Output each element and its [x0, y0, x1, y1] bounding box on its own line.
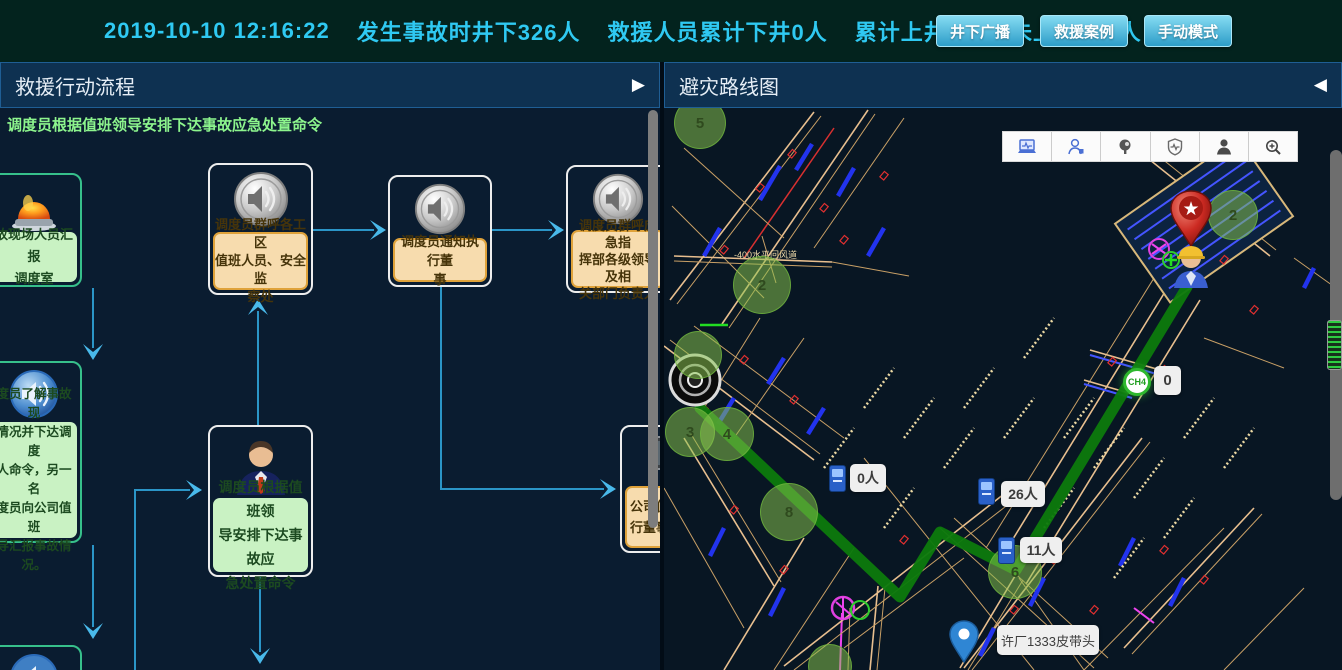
right-panel-header: 避灾路线图 ◀ — [664, 62, 1342, 108]
rescue-cases-button[interactable]: 救援案例 — [1040, 15, 1128, 47]
toolbar-dome-camera-icon[interactable] — [1101, 132, 1150, 161]
flow-box-understand-scene: 度员了解事故现 情况并下达调度 人命令，另一名 度员向公司值班 导汇报事故情 况… — [0, 361, 82, 543]
zone-marker-2b[interactable]: 2 — [1208, 190, 1258, 240]
flow-box-report-scene: 故现场人员汇报 调度室 — [0, 173, 82, 287]
zone-marker-4[interactable]: 4 — [700, 407, 754, 461]
datetime: 2019-10-10 12:16:22 — [104, 18, 330, 44]
reader-device-icon[interactable] — [829, 465, 846, 492]
flowchart-connectors — [0, 108, 660, 670]
flow-box-next-step — [0, 645, 82, 670]
reader-device-icon[interactable] — [978, 478, 995, 505]
right-panel-title: 避灾路线图 — [679, 71, 779, 100]
status-bar: 2019-10-10 12:16:22 发生事故时井下326人 救援人员累计下井… — [0, 0, 1342, 62]
ch4-sensor-icon[interactable]: CH4 — [1123, 368, 1151, 396]
map-toolbar — [1002, 131, 1298, 162]
miner-avatar[interactable] — [1170, 240, 1212, 293]
left-panel-scrollbar[interactable] — [648, 110, 658, 528]
reader-device-icon[interactable] — [998, 537, 1015, 564]
manual-mode-button[interactable]: 手动模式 — [1144, 15, 1232, 47]
flow-box-group-call-hq: 调度员群呼应急指 挥部各级领导及相 关部门负责人 — [566, 165, 660, 293]
destination-label: 许厂1333皮带头 — [997, 625, 1099, 655]
speaker-blue-icon — [0, 653, 80, 670]
rescue-flowchart-panel: 调度员根据值班领导安排下达事故应急处置命令 — [0, 108, 660, 670]
topbar-buttons: 井下广播 救援案例 手动模式 — [936, 15, 1232, 47]
people-count-26[interactable]: 26人 — [1001, 481, 1045, 507]
flow-box-notify-director: 调度员通知执行董 事 — [388, 175, 492, 287]
app-root: 2019-10-10 12:16:22 发生事故时井下326人 救援人员累计下井… — [0, 0, 1342, 670]
collapse-right-icon[interactable]: ▶ — [632, 75, 645, 95]
destination-pin-icon[interactable] — [948, 620, 980, 669]
toolbar-zoom-in-icon[interactable] — [1249, 132, 1297, 161]
escape-route-map-panel: -400水平回风道 5 2 3 4 8 6 2 0人 26人 11人 CH4 0… — [664, 108, 1342, 670]
left-panel-header: 救援行动流程 ▶ — [0, 62, 660, 108]
toolbar-person-icon[interactable] — [1200, 132, 1249, 161]
collapse-left-icon[interactable]: ◀ — [1314, 75, 1327, 95]
zone-marker-8[interactable]: 8 — [760, 483, 818, 541]
toolbar-person-badge-icon[interactable] — [1052, 132, 1101, 161]
toolbar-laptop-monitor-icon[interactable] — [1003, 132, 1052, 161]
zone-marker-2a[interactable]: 2 — [733, 256, 791, 314]
left-panel-title: 救援行动流程 — [15, 71, 135, 100]
map-zoom-slider[interactable] — [1327, 320, 1342, 370]
stat-underground: 发生事故时井下326人 — [357, 15, 581, 47]
people-count-0[interactable]: 0人 — [850, 464, 886, 492]
toolbar-shield-pulse-icon[interactable] — [1151, 132, 1200, 161]
svg-text:★: ★ — [1182, 199, 1199, 220]
zone-marker-blob[interactable] — [674, 331, 722, 379]
underground-broadcast-button[interactable]: 井下广播 — [936, 15, 1024, 47]
ch4-value: 0 — [1154, 366, 1181, 395]
flow-box-group-call-workzones: 调度员群呼各工区 值班人员、安全监 察处 — [208, 163, 313, 295]
stat-rescuers-down: 救援人员累计下井0人 — [607, 15, 827, 47]
people-count-11[interactable]: 11人 — [1020, 537, 1062, 563]
flow-box-leader-order: 调度员根据值班领 导安排下达事故应 急处置命令 — [208, 425, 313, 577]
speaker-grey-icon — [390, 183, 490, 235]
